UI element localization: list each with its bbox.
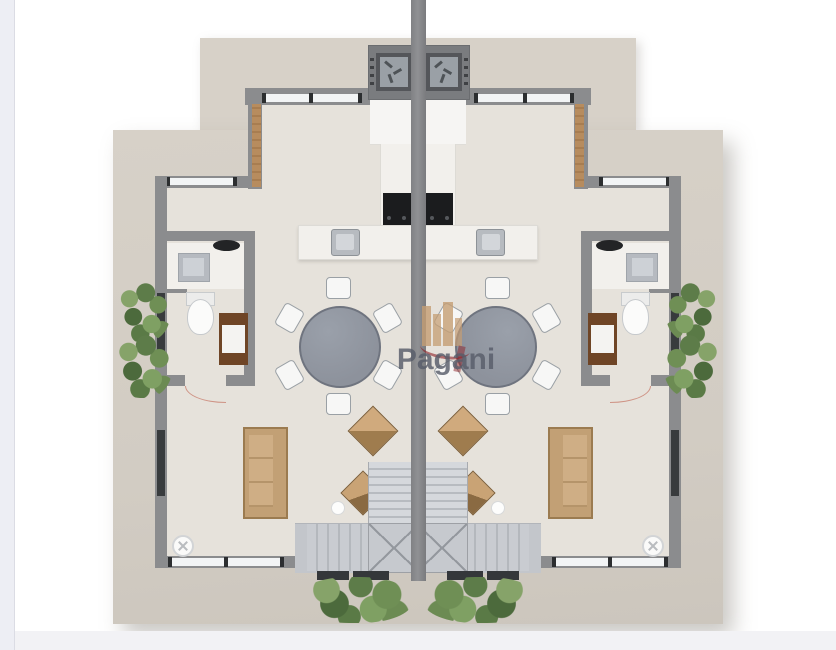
toilet-bowl [622,299,649,335]
cooktop [425,193,453,225]
floor-plan-canvas: Pagani [0,0,836,650]
window-bottom-2 [556,558,608,566]
grill-grate [430,57,458,87]
vanity-basin [626,253,658,282]
pagani-watermark: Pagani [394,298,498,382]
window-post [523,93,527,103]
dining-chair [485,277,510,299]
porch-steps [468,524,529,571]
sofa-cushions [563,435,587,507]
party-wall [411,0,426,581]
interior-stairs [420,462,468,524]
dining-chair [485,393,510,415]
grill-knob [370,82,374,85]
basin-inner [632,258,653,276]
laundry-cabinet [588,313,617,365]
laundry-door [591,325,614,353]
sink-basin [482,234,500,250]
window-living [671,430,679,496]
entry-shrubs [424,577,538,623]
window-top-2 [475,94,524,102]
grill-knob [464,74,468,77]
bbq-grill-right [426,53,462,91]
spot-light-icon [491,501,505,515]
grill-knob [464,82,468,85]
window-post [474,93,478,103]
window-post [552,557,556,567]
bbq-grill-left [376,53,412,91]
watermark-text: Pagani [394,344,498,376]
vessel-sink [596,240,623,251]
grill-knob [370,66,374,69]
ceiling-fan-icon [642,535,664,557]
wall-bath-bottom-b [581,375,610,386]
window-post [608,557,612,567]
side-plant-lower [664,334,722,398]
grill-knob [464,66,468,69]
wall-bath-top [581,231,681,241]
kitchen-sink [476,229,505,256]
grill-knob [370,74,374,77]
grill-knob [370,58,374,61]
window-top-1 [527,94,571,102]
sofa [548,427,593,519]
window-post [599,177,603,186]
kitchen-tall-cabinet [422,97,466,145]
grill-knob [464,58,468,61]
cooktop-knob [445,216,449,220]
side-plant-upper [666,282,720,342]
cooktop-knob [430,216,434,220]
window-post [664,557,668,567]
window-upper-left [601,178,667,185]
wood-panel [575,104,584,187]
window-bottom-1 [612,558,664,566]
page-left-edge [0,0,15,650]
